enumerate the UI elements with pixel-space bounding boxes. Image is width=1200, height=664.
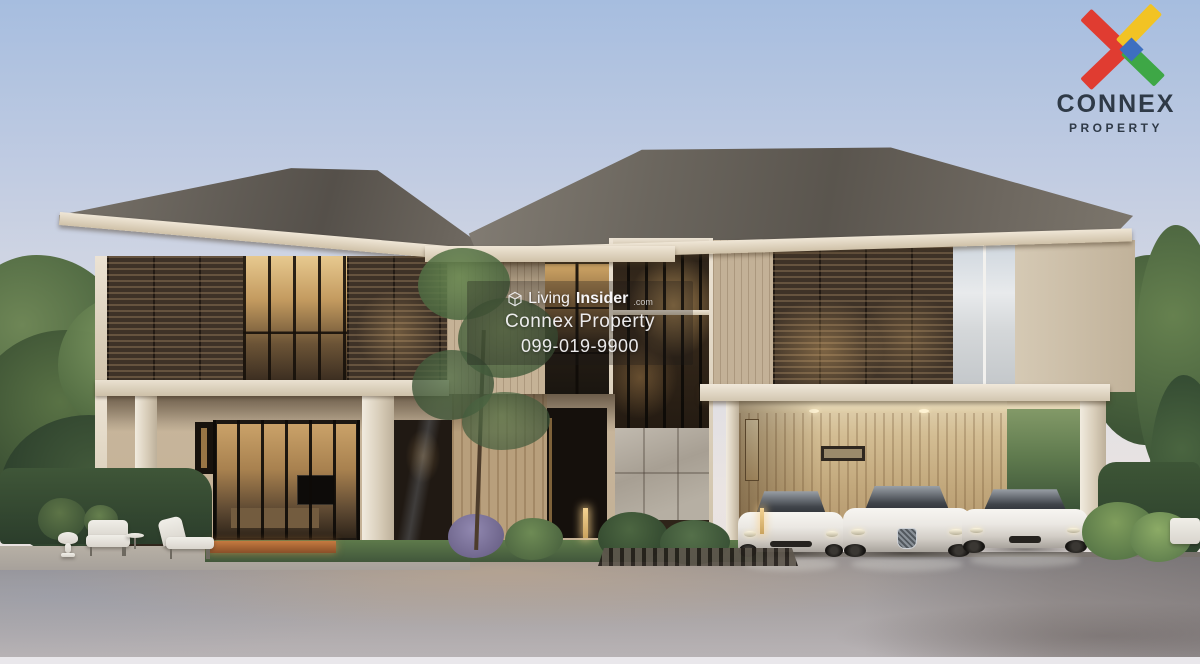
brand-second: Insider [576, 290, 628, 308]
table-leg [134, 538, 136, 549]
headlight [851, 529, 865, 535]
interior-glow [201, 428, 207, 468]
chair-legs [90, 547, 126, 556]
car-grille [897, 528, 918, 549]
white-planter-box [1170, 518, 1200, 544]
glass-doors [213, 420, 360, 542]
louver-panel [107, 256, 243, 382]
urn-base [61, 553, 75, 557]
brand-first: Living [528, 290, 570, 308]
chair-legs [170, 549, 210, 559]
brand-tld: .com [633, 297, 653, 307]
interior-glow [773, 240, 953, 392]
car-porsche [962, 486, 1088, 550]
corner-glass [953, 240, 1015, 392]
carport-roof-band [700, 384, 1110, 401]
car-ferrari [738, 488, 844, 554]
door-glow [549, 418, 552, 528]
car-wheel [844, 544, 866, 557]
recessed-door [547, 408, 607, 538]
chair-seat [166, 537, 214, 549]
watermark-panel: LivingInsider.com Connex Property 099-01… [467, 281, 693, 365]
connex-subtitle: PROPERTY [1038, 121, 1194, 135]
photo-bottom-strip [0, 657, 1200, 664]
upper-floor-left-wing [95, 256, 447, 382]
glass-doors [394, 420, 452, 540]
patio-table [126, 533, 144, 549]
walkway-grate [598, 548, 798, 566]
lit-planter-strip [208, 541, 336, 553]
cube-outline-icon [507, 291, 523, 307]
louver-panel [773, 240, 953, 392]
facade-pillar [362, 394, 394, 552]
upper-floor-right-wing [713, 240, 1135, 392]
window-mullions [243, 256, 347, 382]
window-mullions [213, 420, 360, 542]
chair-seat [86, 535, 130, 547]
glass-mullion [983, 240, 986, 392]
connex-x-icon [1074, 10, 1162, 90]
connex-logo: CONNEX PROPERTY [1038, 6, 1194, 138]
stone-panel [609, 428, 713, 520]
bollard-light [760, 508, 764, 534]
listing-photo: LivingInsider.com Connex Property 099-01… [0, 0, 1200, 664]
headlight [744, 531, 756, 537]
car-reflection [851, 557, 964, 571]
watermark-phone: 099-019-9900 [521, 336, 639, 357]
headlight [826, 531, 838, 537]
patio-lounge-chair [160, 518, 214, 562]
siding-segment [713, 240, 773, 392]
car-grille [1009, 536, 1042, 543]
siding-segment [1015, 240, 1135, 392]
connex-wordmark: CONNEX [1038, 90, 1194, 119]
patio-chair [86, 520, 130, 558]
corner-trim [95, 256, 107, 382]
car-grille [770, 541, 812, 547]
x-arm-yellow [1116, 3, 1162, 50]
car-wheel [963, 540, 984, 553]
living-insider-logo: LivingInsider.com [507, 290, 653, 308]
watermark-content: LivingInsider.com Connex Property 099-01… [467, 281, 693, 365]
urn-stem [65, 543, 71, 553]
car-bentley [843, 482, 971, 554]
planter-urn [58, 530, 78, 558]
watermark-agency: Connex Property [505, 311, 655, 333]
upper-window [243, 256, 347, 382]
bollard-light [583, 508, 588, 538]
stone-joints [609, 428, 713, 520]
car-reflection [970, 553, 1081, 567]
glass-reflection [394, 420, 452, 540]
balcony-sill-band [95, 380, 449, 396]
